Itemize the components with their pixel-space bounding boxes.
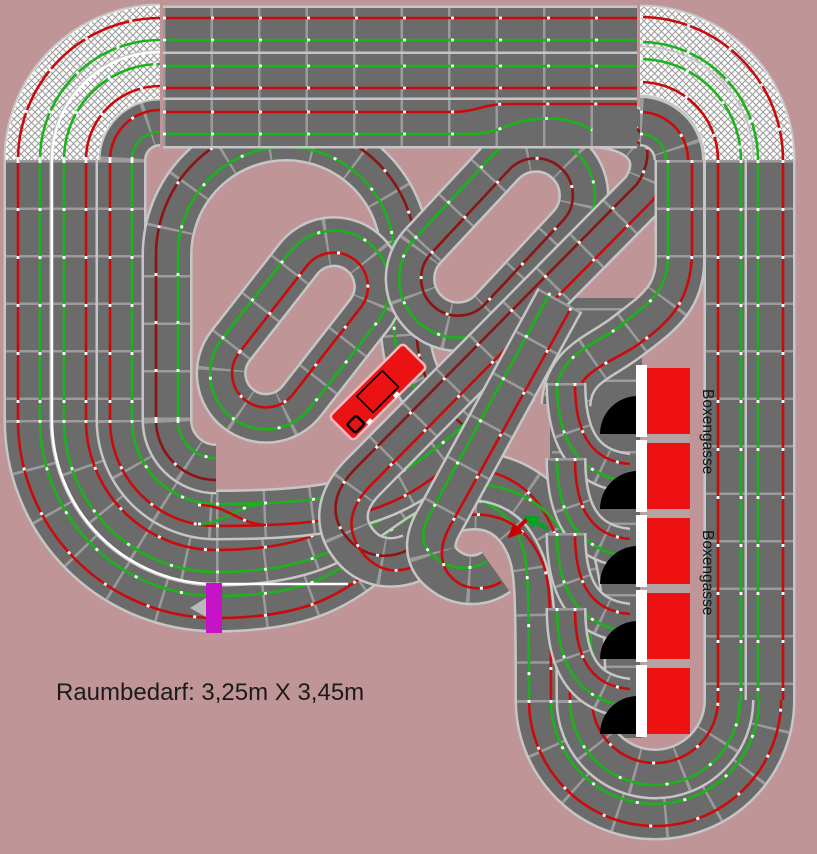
pit-box[interactable]	[647, 518, 690, 584]
track-plan-canvas: Boxengasse Boxengasse Raumbedarf: 3,25m …	[0, 0, 817, 854]
pit-box-separator	[640, 434, 690, 443]
pit-stripe	[636, 515, 647, 587]
pit-stripe	[636, 440, 647, 512]
pit-stripe	[636, 590, 647, 662]
left-straight-block[interactable]	[18, 160, 132, 420]
pit-box[interactable]	[647, 443, 690, 509]
pit-stripe	[636, 365, 647, 437]
pit-stripe	[636, 665, 647, 737]
pit-box-separator	[640, 584, 690, 593]
pit-box[interactable]	[647, 368, 690, 434]
connector-marker[interactable]	[206, 583, 222, 633]
slot-car-track-plan: Boxengasse Boxengasse Raumbedarf: 3,25m …	[0, 0, 817, 854]
right-straight-block[interactable]	[718, 160, 783, 700]
space-requirement-note: Raumbedarf: 3,25m X 3,45m	[56, 679, 364, 706]
pit-label-top: Boxengasse	[699, 389, 716, 474]
pit-box-separator	[640, 659, 690, 668]
top-straight-block[interactable]	[163, 18, 637, 134]
pit-box[interactable]	[647, 668, 690, 734]
pit-lane	[557, 365, 690, 737]
pit-box[interactable]	[647, 593, 690, 659]
pit-label-bottom: Boxengasse	[699, 530, 716, 615]
pit-box-separator	[640, 509, 690, 518]
